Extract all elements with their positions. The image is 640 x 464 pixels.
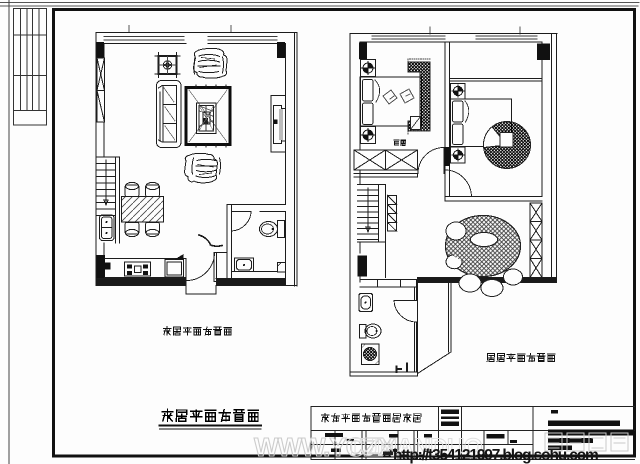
svg-text:http://t354121997.blog.sohu.co: http://t354121997.blog.sohu.com [393,447,598,464]
